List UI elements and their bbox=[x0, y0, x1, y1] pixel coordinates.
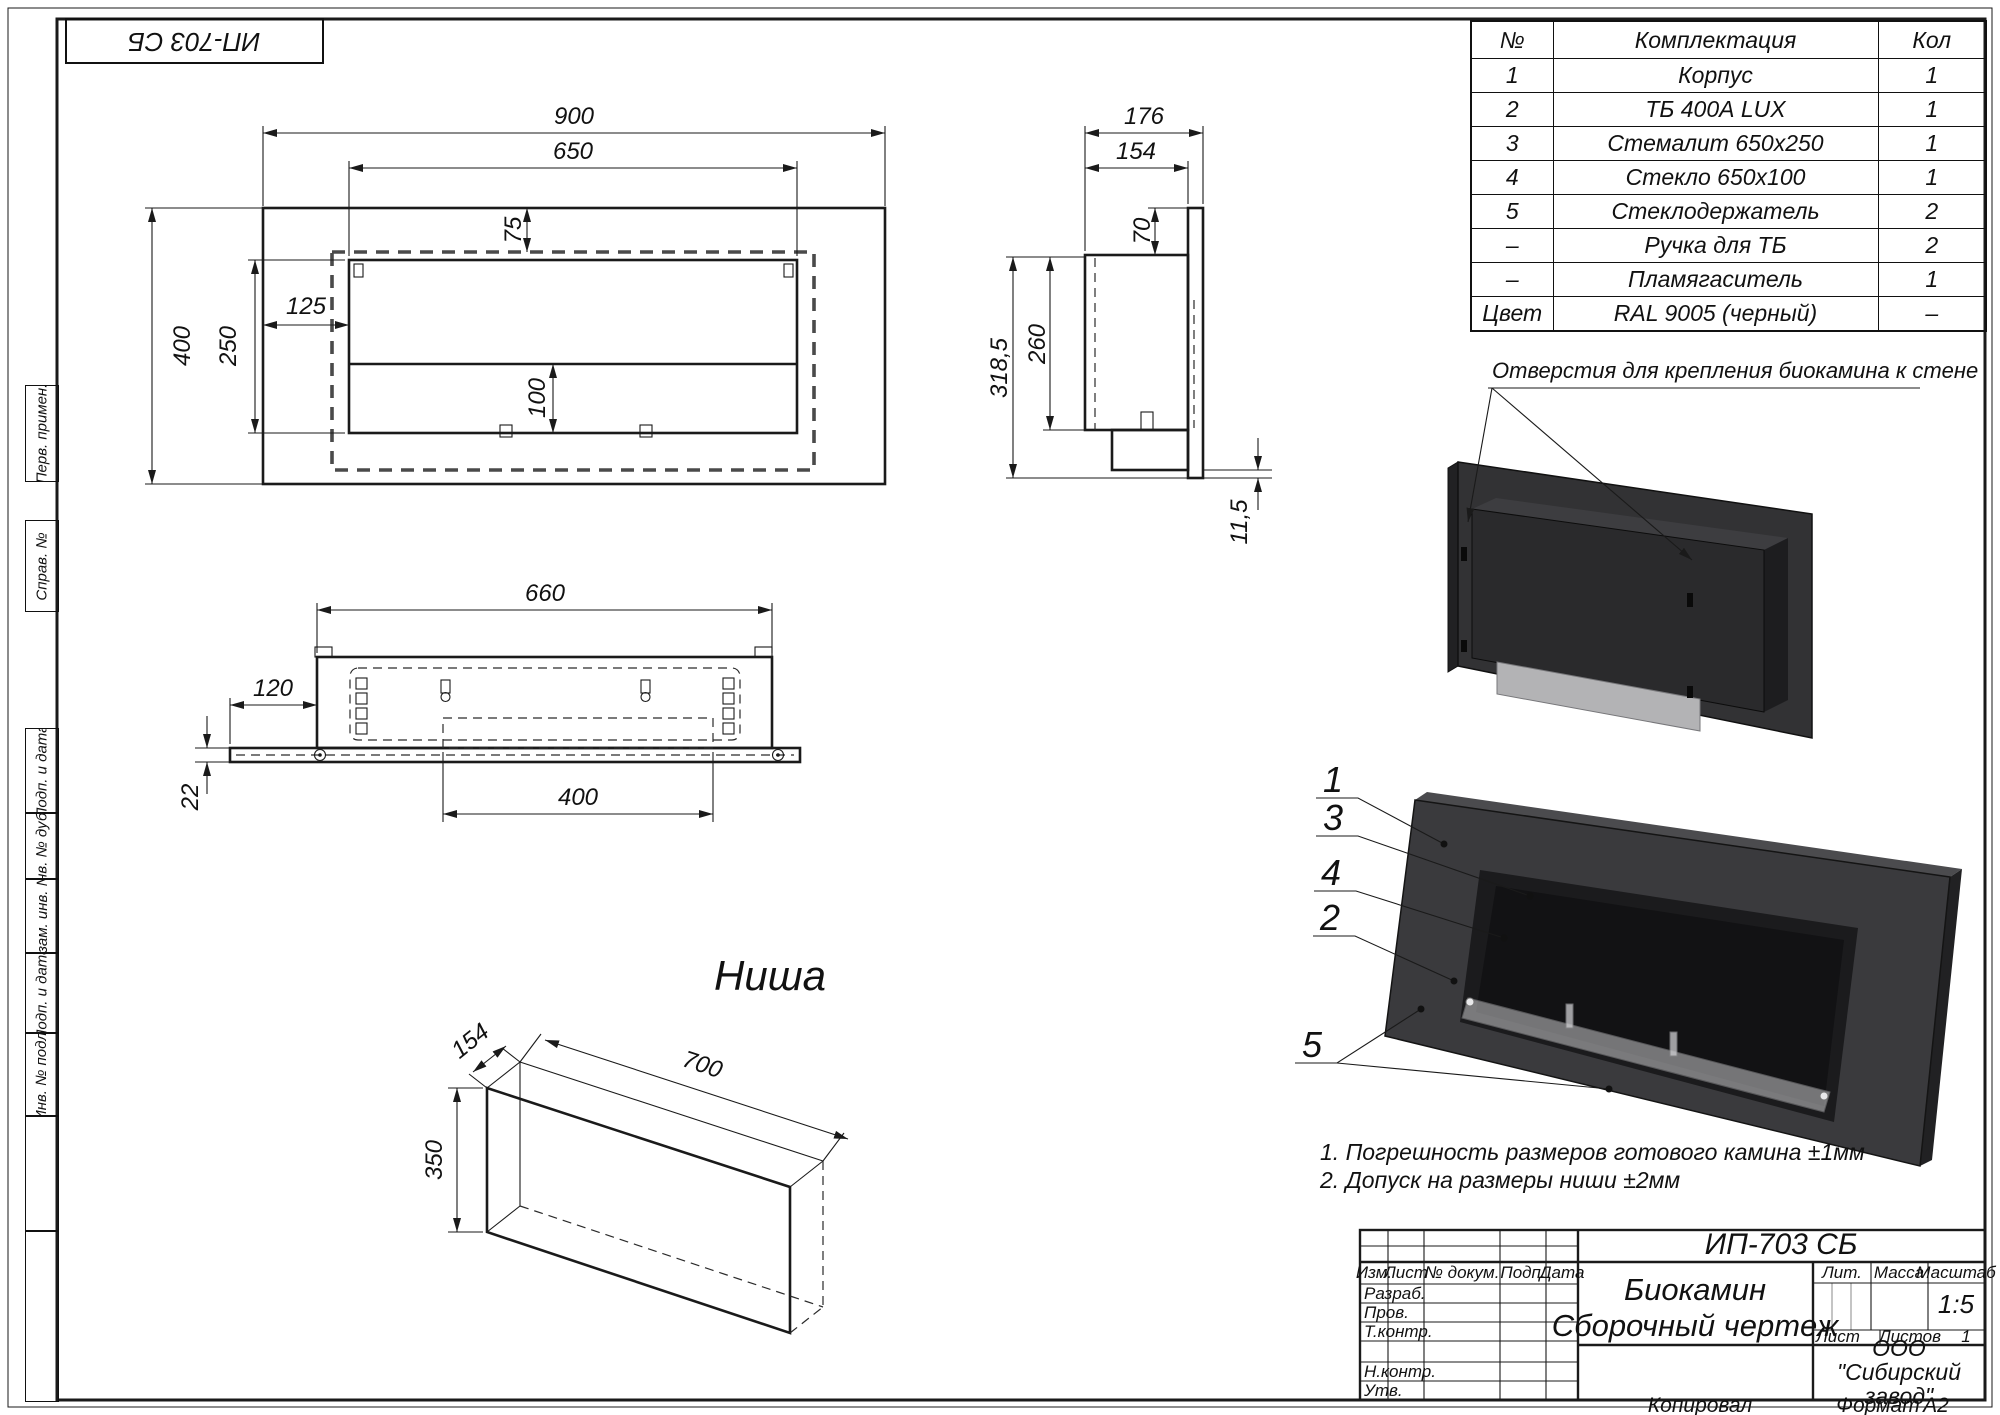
note-1: 1. Погрешность размеров готового камина … bbox=[1320, 1139, 1865, 1165]
table-row: 1Корпус1 bbox=[1471, 59, 1986, 93]
svg-text:Копировал: Копировал bbox=[1648, 1394, 1753, 1415]
doc-type: Сборочный чертеж bbox=[1552, 1308, 1840, 1343]
dim-front-height: 400 bbox=[169, 325, 196, 366]
callout-3: 3 bbox=[1323, 797, 1343, 838]
table-row: ЦветRAL 9005 (черный)– bbox=[1471, 297, 1986, 332]
dim-niche-width: 700 bbox=[679, 1046, 726, 1084]
dim-side-depth: 176 bbox=[1124, 103, 1165, 130]
table-row: –Пламягаситель1 bbox=[1471, 263, 1986, 297]
callout-5: 5 bbox=[1302, 1024, 1323, 1065]
dim-side-body-height: 260 bbox=[1024, 323, 1051, 365]
svg-text:№ докум.: № докум. bbox=[1425, 1263, 1500, 1282]
keyhole-slots bbox=[441, 680, 650, 702]
dim-niche-depth: 154 bbox=[446, 1018, 494, 1064]
dim-front-width: 900 bbox=[554, 103, 595, 130]
table-row: 2ТБ 400А LUX1 bbox=[1471, 93, 1986, 127]
dim-side-flange: 70 bbox=[1129, 217, 1156, 244]
margin-box-empty-1 bbox=[25, 1115, 59, 1232]
niche-outline-dashed bbox=[332, 252, 814, 470]
niche-label: Ниша bbox=[714, 952, 826, 999]
mount-holes-annotation: Отверстия для крепления биокамина к стен… bbox=[1492, 358, 1978, 383]
side-view: 176 154 70 260 318,5 11,5 bbox=[986, 103, 1272, 544]
doc-number: ИП-703 СБ bbox=[1705, 1228, 1858, 1261]
doc-number-stamp-text: ИП-703 СБ bbox=[128, 26, 260, 57]
svg-text:Лит.: Лит. bbox=[1821, 1263, 1862, 1282]
callout-1: 1 bbox=[1323, 759, 1343, 800]
dim-bottom-slot-span: 400 bbox=[558, 784, 599, 811]
margin-box-vzam-inv: Взам. инв. № bbox=[25, 878, 59, 954]
dim-side-inner-depth: 154 bbox=[1116, 138, 1156, 165]
table-row: 4Стекло 650х1001 bbox=[1471, 161, 1986, 195]
callout-2: 2 bbox=[1319, 897, 1340, 938]
niche-view: Ниша 350 154 700 bbox=[421, 952, 848, 1333]
svg-text:Н.контр.: Н.контр. bbox=[1364, 1362, 1436, 1381]
table-row: –Ручка для ТБ2 bbox=[1471, 229, 1986, 263]
svg-text:Т.контр.: Т.контр. bbox=[1364, 1322, 1433, 1341]
svg-text:Пров.: Пров. bbox=[1364, 1303, 1409, 1322]
front-view: 900 650 400 250 125 75 100 bbox=[145, 103, 885, 484]
margin-box-inv-podl: Инв. № подл. bbox=[25, 1032, 59, 1117]
bottom-view: 660 120 400 22 bbox=[177, 580, 800, 822]
svg-text:Утв.: Утв. bbox=[1363, 1381, 1403, 1400]
dim-bottom-width: 660 bbox=[525, 580, 566, 607]
svg-text:Разраб.: Разраб. bbox=[1364, 1284, 1426, 1303]
doc-number-stamp: ИП-703 СБ bbox=[65, 18, 324, 64]
margin-box-sprav-no: Справ. № bbox=[25, 520, 59, 612]
dim-front-top-offset: 75 bbox=[500, 216, 527, 243]
margin-box-perv-primen: Перв. примен. bbox=[25, 385, 59, 482]
dim-niche-height: 350 bbox=[421, 1139, 448, 1180]
svg-text:Масштаб: Масштаб bbox=[1916, 1263, 1997, 1282]
vent-holes bbox=[356, 678, 734, 734]
margin-box-podp-data-2: Подп. и дата bbox=[25, 952, 59, 1034]
dim-bottom-side-ext: 120 bbox=[253, 675, 294, 702]
dim-side-total-height: 318,5 bbox=[986, 337, 1013, 398]
svg-text:Лист: Лист bbox=[1383, 1263, 1428, 1282]
dim-front-opening-height: 250 bbox=[215, 325, 242, 367]
margin-box-podp-data-1: Подп. и дата bbox=[25, 728, 59, 814]
notes: 1. Погрешность размеров готового камина … bbox=[1319, 1139, 1865, 1193]
parts-table-header: № Комплектация Кол bbox=[1471, 21, 1986, 59]
margin-box-inv-dubl: Инв. № дубл. bbox=[25, 812, 59, 880]
callout-4: 4 bbox=[1321, 852, 1341, 893]
svg-text:Дата: Дата bbox=[1538, 1263, 1585, 1282]
dim-front-glass-height: 100 bbox=[524, 377, 551, 418]
render-front-view: 1 3 4 2 5 bbox=[1295, 759, 1962, 1166]
margin-box-empty-2 bbox=[25, 1230, 59, 1402]
render-back-view: Отверстия для крепления биокамина к стен… bbox=[1448, 358, 1978, 738]
scale-value: 1:5 bbox=[1938, 1289, 1975, 1319]
product-name: Биокамин bbox=[1624, 1272, 1766, 1307]
dim-bottom-plate: 22 bbox=[177, 784, 204, 812]
note-2: 2. Допуск на размеры ниши ±2мм bbox=[1319, 1167, 1680, 1193]
table-row: 5Стеклодержатель2 bbox=[1471, 195, 1986, 229]
table-row: 3Стемалит 650х2501 bbox=[1471, 127, 1986, 161]
dim-front-left-offset: 125 bbox=[286, 293, 327, 320]
drawing-sheet: 900 650 400 250 125 75 100 176 bbox=[0, 0, 2000, 1415]
dim-side-bottom-gap: 11,5 bbox=[1226, 499, 1253, 545]
company-name: ООО "Сибирский завод" bbox=[1815, 1348, 1983, 1398]
parts-table: № Комплектация Кол 1Корпус1 2ТБ 400А LUX… bbox=[1470, 20, 1987, 332]
dim-front-opening-width: 650 bbox=[553, 138, 594, 165]
